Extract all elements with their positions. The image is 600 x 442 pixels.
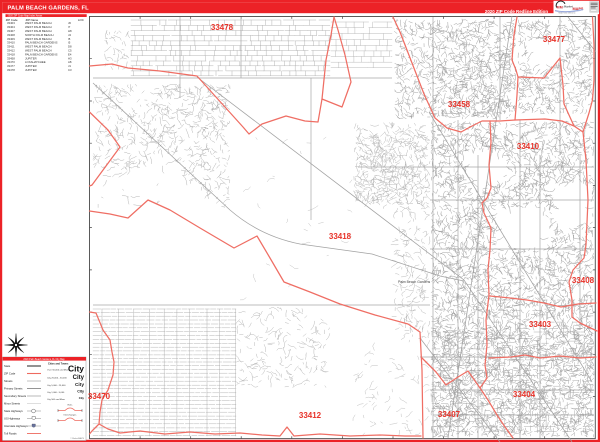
svg-text:City 500 and More: City 500 and More: [47, 398, 66, 401]
svg-text:City: City: [73, 375, 85, 381]
svg-text:33407: 33407: [438, 410, 461, 419]
svg-text:Over 50,000 and More: Over 50,000 and More: [47, 369, 70, 372]
svg-text:Minor Streets: Minor Streets: [4, 402, 21, 406]
svg-text:City 5,000 - 25,000: City 5,000 - 25,000: [47, 384, 66, 387]
svg-text:State: State: [4, 364, 11, 368]
svg-text:M: M: [560, 6, 563, 10]
svg-text:33477: 33477: [543, 35, 566, 44]
svg-text:33410: 33410: [517, 142, 540, 151]
svg-text:City 25,000 - 50,000: City 25,000 - 50,000: [47, 377, 67, 380]
svg-text:33418: 33418: [329, 232, 352, 241]
svg-text:Interchanges: Interchanges: [64, 414, 78, 417]
svg-text:2020 Palm Beach Gardens, FL Ci: 2020 Palm Beach Gardens, FL City Map: [23, 358, 65, 361]
svg-text:PALM BEACH GARDENS, FL: PALM BEACH GARDENS, FL: [8, 5, 90, 11]
svg-text:Primary Streets: Primary Streets: [4, 387, 23, 391]
svg-text:ZIP Code: ZIP Code: [4, 372, 16, 376]
svg-text:City 1,000 - 5,000: City 1,000 - 5,000: [47, 391, 65, 394]
svg-text:2020 ZIP Code Redline Edition: 2020 ZIP Code Redline Edition: [485, 9, 548, 14]
svg-text:© MarketMAPS: © MarketMAPS: [70, 437, 84, 440]
svg-text:33404: 33404: [513, 390, 536, 399]
svg-text:Interstate Highways: Interstate Highways: [4, 424, 28, 428]
svg-text:Palm Beach Gardens: Palm Beach Gardens: [398, 280, 431, 284]
svg-text:JUPITER: JUPITER: [25, 68, 37, 72]
svg-text:Cities and Towns: Cities and Towns: [48, 362, 69, 365]
svg-text:33458: 33458: [448, 100, 471, 109]
svg-text:City: City: [75, 382, 84, 388]
svg-text:State Highways: State Highways: [4, 409, 23, 413]
svg-text:33470: 33470: [88, 392, 111, 401]
svg-text:33412: 33412: [299, 411, 322, 420]
svg-text:US Highways: US Highways: [4, 417, 21, 421]
svg-text:Maps. Data. Delivered.: Maps. Data. Delivered.: [559, 12, 577, 15]
svg-text:Secondary Streets: Secondary Streets: [4, 394, 27, 398]
svg-text:City: City: [68, 364, 84, 374]
svg-text:Streets: Streets: [4, 379, 13, 383]
svg-text:33478: 33478: [7, 68, 15, 72]
svg-text:C3: C3: [68, 68, 72, 72]
svg-text:Toll Roads: Toll Roads: [4, 432, 17, 436]
svg-text:33403: 33403: [529, 320, 552, 329]
svg-text:33478: 33478: [211, 23, 234, 32]
svg-text:33408: 33408: [572, 276, 595, 285]
svg-text:City: City: [77, 390, 84, 394]
svg-text:City: City: [79, 396, 85, 400]
svg-text:LOC: LOC: [78, 18, 84, 22]
